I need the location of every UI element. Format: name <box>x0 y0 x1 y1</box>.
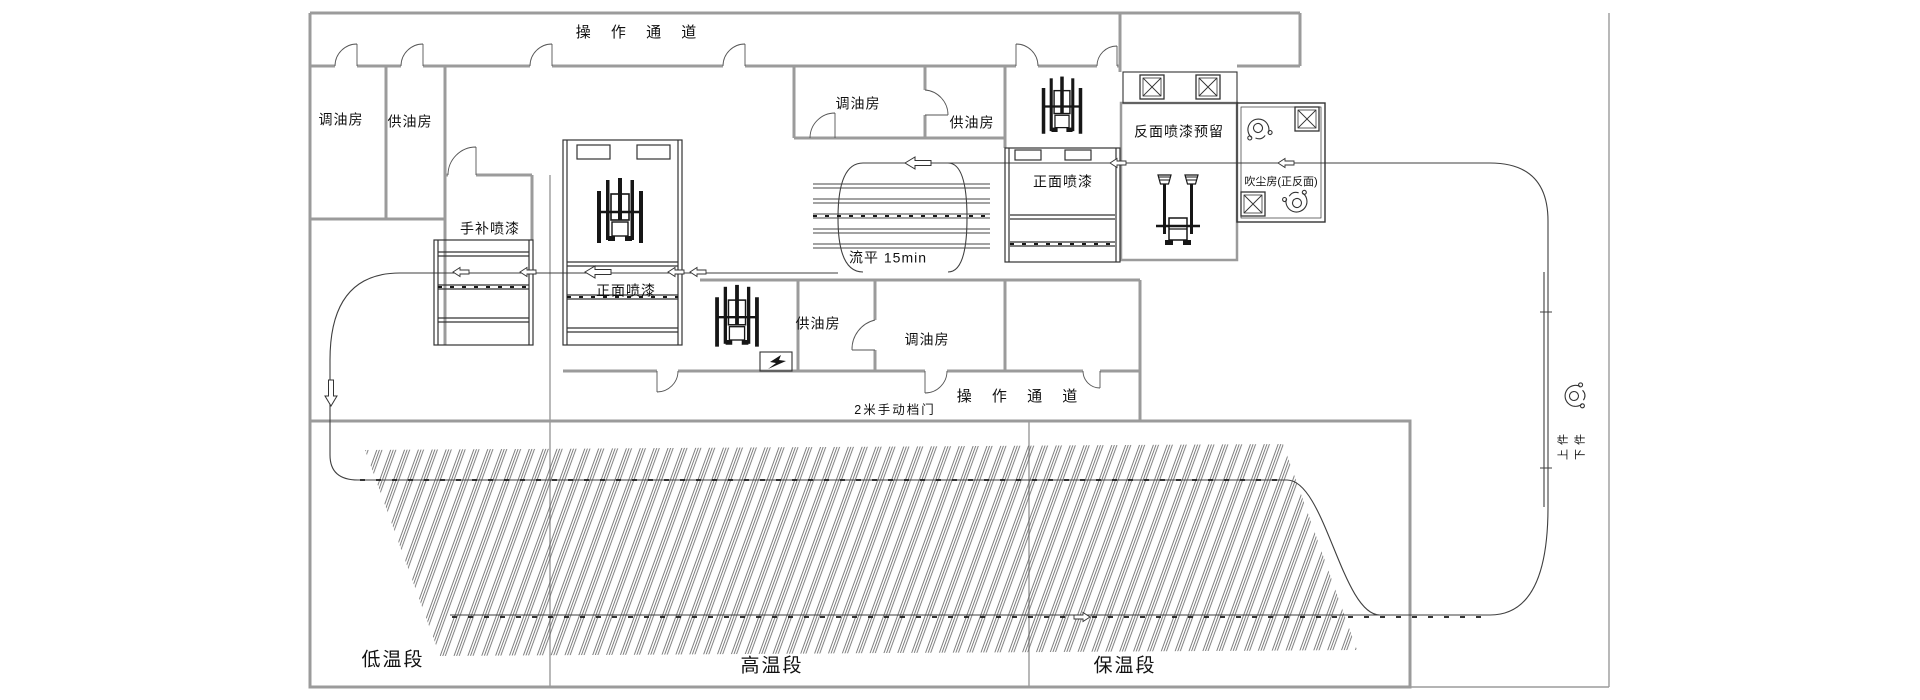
rail-dash-marks <box>438 216 1115 297</box>
fan-icon <box>1295 107 1319 131</box>
worker-icon <box>1281 188 1311 215</box>
oven-section-label-hold: 保温段 <box>1093 657 1156 678</box>
power-box <box>760 352 792 371</box>
flow-arrow-left-icon <box>905 157 931 169</box>
flow-arrow-left-icon <box>453 268 469 277</box>
paint-robot-icon <box>1042 77 1082 134</box>
lightning-icon <box>768 355 786 369</box>
room-label-touch-up: 手补喷漆 <box>460 221 520 236</box>
room-label-front-spray-right: 正面喷漆 <box>1033 174 1093 189</box>
flow-arrow-left-icon <box>1110 159 1126 168</box>
room-label-supply-lower: 供油房 <box>796 316 841 331</box>
flow-arrow-left-icon <box>1278 159 1294 168</box>
oven-conveyor-coil-hatch <box>365 444 1357 656</box>
paint-robot-icon <box>715 285 759 347</box>
paint-robot-icon <box>597 178 643 243</box>
flow-arrow-down-icon <box>325 380 337 406</box>
spray-booth-left-small <box>434 240 533 345</box>
reserve-spray-robot-icon <box>1156 175 1200 245</box>
station-label-load: 上件 <box>1556 430 1573 460</box>
room-label-mixing-mid: 调油房 <box>836 96 881 111</box>
fan-icon <box>1241 192 1265 216</box>
flow-arrow-left-icon <box>585 266 611 278</box>
worker-icon <box>1244 116 1273 142</box>
room-label-front-spray-left: 正面喷漆 <box>596 283 656 298</box>
fan-filter-row <box>1123 72 1237 103</box>
worker-icon <box>1564 383 1586 410</box>
station-label-unload: 下件 <box>1572 430 1589 460</box>
oven-section-label-high: 高温段 <box>740 657 803 678</box>
room-label-dust-room: 吹尘房(正反面) <box>1244 176 1317 188</box>
process-label-leveling: 流平 15min <box>849 250 927 265</box>
corridor-label-bottom: 操 作 通 道 <box>957 389 1086 406</box>
fan-icon <box>1140 75 1164 99</box>
room-label-supply-mid: 供油房 <box>950 115 995 130</box>
room-label-supply-left: 供油房 <box>388 114 433 129</box>
spray-booth-left-main <box>563 140 682 345</box>
fan-icon <box>1196 75 1220 99</box>
floorplan-drawing <box>0 0 1920 700</box>
room-label-mixing-left: 调油房 <box>319 112 364 127</box>
station-label-load-unload: 上件 下件 <box>1556 430 1589 460</box>
oven-section-label-low: 低温段 <box>361 651 424 672</box>
corridor-label-top: 操 作 通 道 <box>576 25 705 42</box>
process-label-manual-door: 2米手动档门 <box>854 404 935 418</box>
flow-arrow-left-icon <box>690 268 706 277</box>
paint-shop-floorplan: 操 作 通 道 调油房 供油房 手补喷漆 正面喷漆 调油房 供油房 流平 15m… <box>0 0 1920 700</box>
room-label-mixing-lower: 调油房 <box>905 332 950 347</box>
room-label-back-spray-reserved: 反面喷漆预留 <box>1134 124 1224 139</box>
